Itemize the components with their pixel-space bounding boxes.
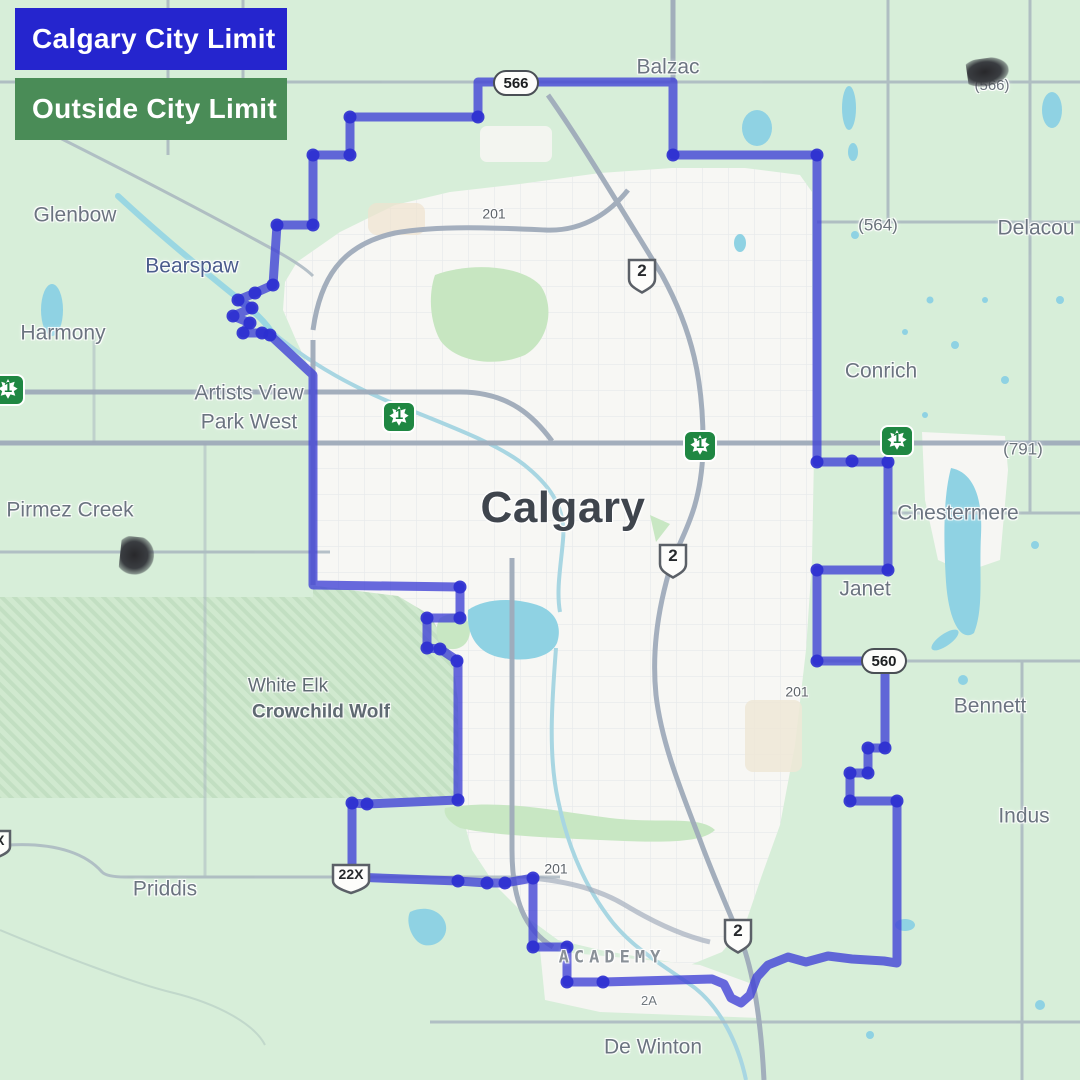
map-canvas[interactable] [0, 0, 1080, 1080]
legend-item-outside-limit: Outside City Limit [15, 78, 287, 140]
legend-label: Calgary City Limit [32, 23, 275, 55]
legend: Calgary City Limit Outside City Limit [15, 8, 287, 148]
map-screenshot: 201 [0, 0, 1080, 1080]
legend-item-city-limit: Calgary City Limit [15, 8, 287, 70]
legend-label: Outside City Limit [32, 93, 277, 125]
hatched-reserve-area [0, 586, 458, 798]
